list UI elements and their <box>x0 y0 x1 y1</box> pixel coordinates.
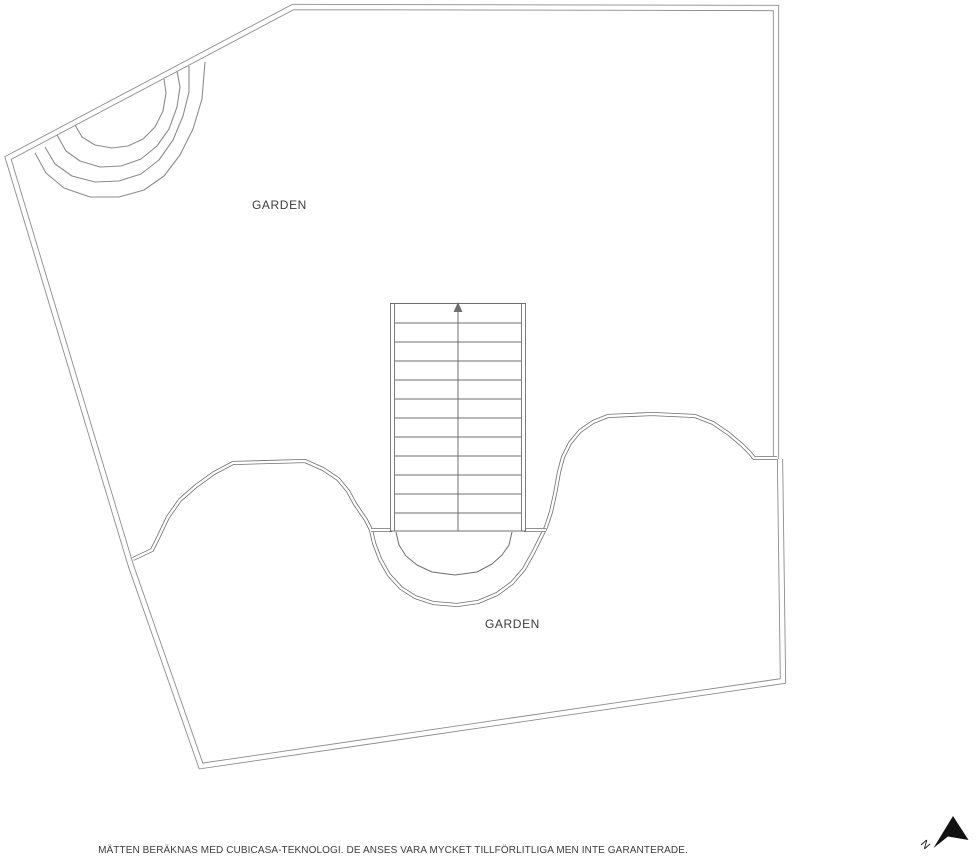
garden-curve-core <box>133 414 777 605</box>
garden-curve-line <box>133 414 777 605</box>
stair-landing-curve <box>396 532 512 575</box>
boundary-wall-line <box>8 7 783 766</box>
north-arrow-icon <box>934 816 969 848</box>
measurement-disclaimer: MÄTTEN BERÄKNAS MED CUBICASA-TEKNOLOGI. … <box>0 845 786 856</box>
staircase <box>390 302 526 531</box>
site-plan-drawing <box>0 0 978 864</box>
garden-border-curve <box>133 414 777 605</box>
boundary-wall-core <box>8 7 783 766</box>
floor-plan-page: GARDEN GARDEN N MÄTTEN BERÄKNAS MED CUBI… <box>0 0 978 864</box>
plot-boundary-wall <box>8 7 783 766</box>
room-label-garden-upper: GARDEN <box>252 198 307 212</box>
room-label-garden-lower: GARDEN <box>485 617 540 631</box>
